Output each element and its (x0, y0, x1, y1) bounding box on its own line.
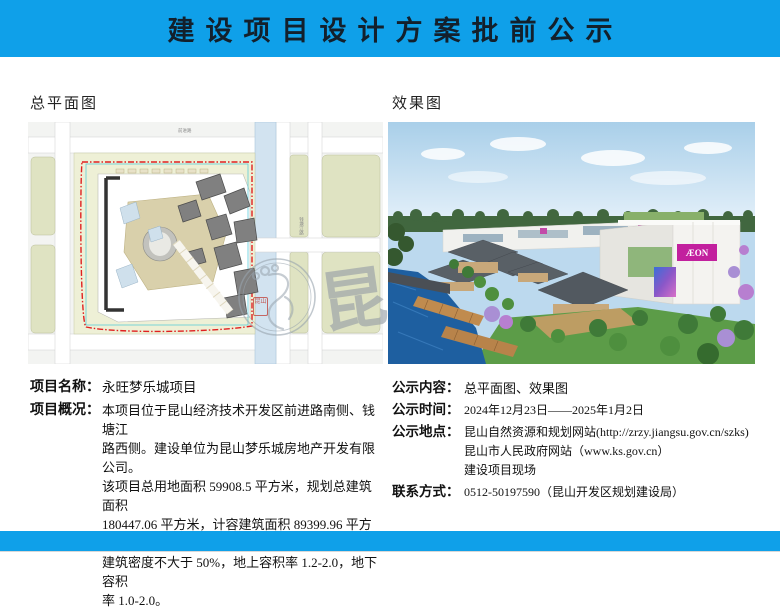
location-line: 昆山市人民政府网站（www.ks.gov.cn） (464, 442, 749, 461)
project-name-label: 项目名称： (30, 378, 102, 398)
header-bar: 建设项目设计方案批前公示 (0, 0, 780, 57)
notice-details: 公示内容： 总平面图、效果图 公示时间： 2024年12月23日——2025年1… (392, 378, 772, 504)
aeon-sign-text: ÆON (686, 248, 709, 258)
notice-content-value: 总平面图、效果图 (464, 378, 568, 398)
project-overview-text: 本项目位于昆山经济技术开发区前进路南侧、钱塘江 路西侧。建设单位为昆山梦乐城房地… (102, 401, 382, 610)
notice-contact-value: 0512-50197590（昆山开发区规划建设局） (464, 482, 684, 502)
project-overview-row: 项目概况： 本项目位于昆山经济技术开发区前进路南侧、钱塘江 路西侧。建设单位为昆… (30, 401, 382, 610)
notice-location-row: 公示地点： 昆山自然资源和规划网站(http://zrzy.jiangsu.go… (392, 422, 772, 480)
project-name-row: 项目名称： 永旺梦乐城项目 (30, 378, 382, 398)
overview-line: 路西侧。建设单位为昆山梦乐城房地产开发有限公司。 (102, 439, 382, 477)
site-plan-drawing: 前进路 钱塘江路 (28, 122, 383, 364)
page-title: 建设项目设计方案批前公示 (157, 9, 624, 48)
caption-site-plan: 总平面图 (30, 92, 98, 113)
rendering-image: ÆON (388, 122, 755, 364)
project-details: 项目名称： 永旺梦乐城项目 项目概况： 本项目位于昆山经济技术开发区前进路南侧、… (30, 378, 382, 613)
site-plan-image: 前进路 钱塘江路 (28, 122, 383, 364)
overview-line: 率 1.0-2.0。 (102, 591, 382, 610)
road-label-east: 钱塘江路 (299, 216, 305, 237)
led-billboard (654, 267, 676, 297)
notice-content-label: 公示内容： (392, 378, 464, 398)
notice-content-row: 公示内容： 总平面图、效果图 (392, 378, 772, 398)
notice-time-value: 2024年12月23日——2025年1月2日 (464, 400, 644, 420)
project-name-value: 永旺梦乐城项目 (102, 378, 197, 398)
caption-rendering: 效果图 (392, 92, 443, 113)
project-overview-label: 项目概况： (30, 401, 102, 610)
notice-contact-row: 联系方式： 0512-50197590（昆山开发区规划建设局） (392, 482, 772, 502)
overview-line: 建筑密度不大于 50%，地上容积率 1.2-2.0，地下容积 (102, 553, 382, 591)
notice-contact-label: 联系方式： (392, 482, 464, 502)
location-line: 建设项目现场 (464, 461, 749, 480)
road-north (28, 137, 383, 153)
notice-time-label: 公示时间： (392, 400, 464, 420)
notice-time-row: 公示时间： 2024年12月23日——2025年1月2日 (392, 400, 772, 420)
road-west (55, 122, 70, 364)
road-south (28, 334, 383, 350)
bridge-road (250, 238, 380, 252)
road-label-north: 前进路 (178, 127, 192, 134)
rendering-drawing: ÆON (388, 122, 755, 364)
footer-bar (0, 531, 780, 551)
overview-line: 该项目总用地面积 59908.5 平方米，规划总建筑面积 (102, 477, 382, 515)
location-line: 昆山自然资源和规划网站(http://zrzy.jiangsu.gov.cn/s… (464, 423, 749, 442)
notice-location-label: 公示地点： (392, 422, 464, 480)
notice-location-text: 昆山自然资源和规划网站(http://zrzy.jiangsu.gov.cn/s… (464, 422, 749, 480)
overview-line: 本项目位于昆山经济技术开发区前进路南侧、钱塘江 (102, 401, 382, 439)
